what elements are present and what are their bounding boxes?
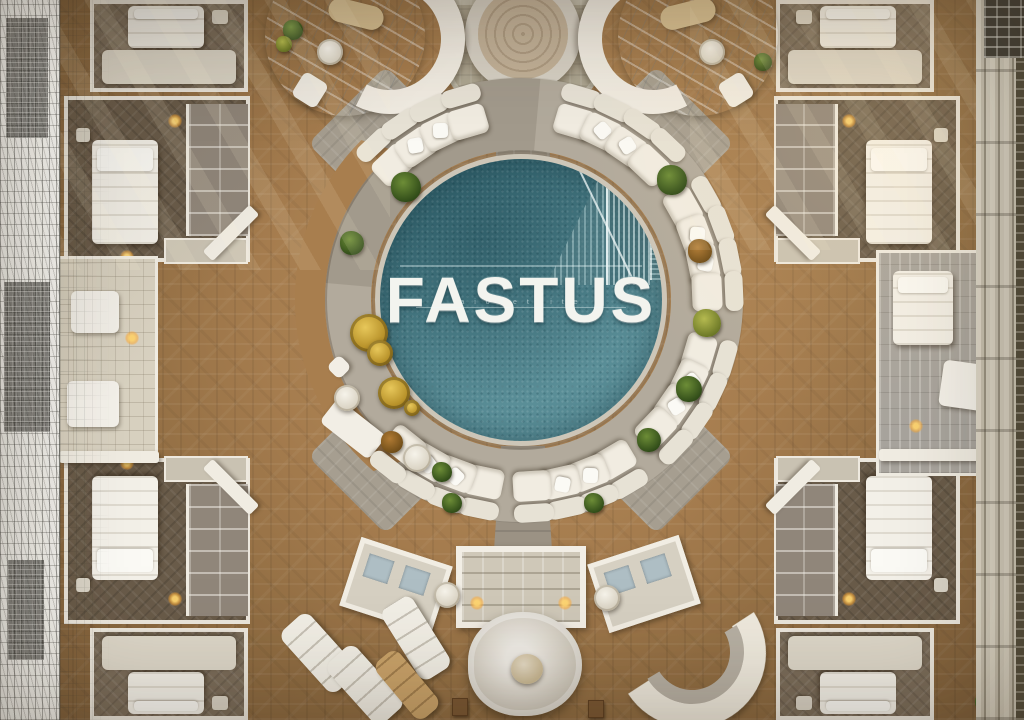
round-side-table xyxy=(317,39,343,65)
bush-planter xyxy=(381,431,403,453)
bush-planter xyxy=(391,172,421,202)
round-side-table xyxy=(434,582,460,608)
bush-planter xyxy=(340,231,364,255)
bush-planter xyxy=(693,309,721,337)
sketch-detail-patch xyxy=(6,18,48,138)
bush-planter xyxy=(754,53,772,71)
sketch-fade-overlay xyxy=(60,0,112,720)
facade-dark-edge xyxy=(1016,0,1024,720)
aerial-resort-floorplan-render: FASTUS a i o x e t l i t e xyxy=(0,0,1024,720)
bush-planter xyxy=(442,493,462,513)
gold-round-table xyxy=(367,340,393,366)
bush-planter xyxy=(432,462,452,482)
bush-planter xyxy=(676,376,702,402)
bush-planter xyxy=(688,239,712,263)
bush-planter xyxy=(584,493,604,513)
round-side-table xyxy=(403,444,431,472)
round-side-table xyxy=(699,39,725,65)
facade-window-grid xyxy=(984,0,1024,58)
blueprint-sketch-edge xyxy=(0,0,60,720)
planters-and-tables xyxy=(0,0,1024,720)
bush-planter xyxy=(637,428,661,452)
bush-planter xyxy=(276,36,292,52)
round-side-table xyxy=(334,385,360,411)
gold-round-table xyxy=(404,400,420,416)
sketch-detail-patch xyxy=(8,560,44,660)
round-side-table xyxy=(594,585,620,611)
sketch-detail-patch xyxy=(4,282,50,432)
bush-planter xyxy=(657,165,687,195)
